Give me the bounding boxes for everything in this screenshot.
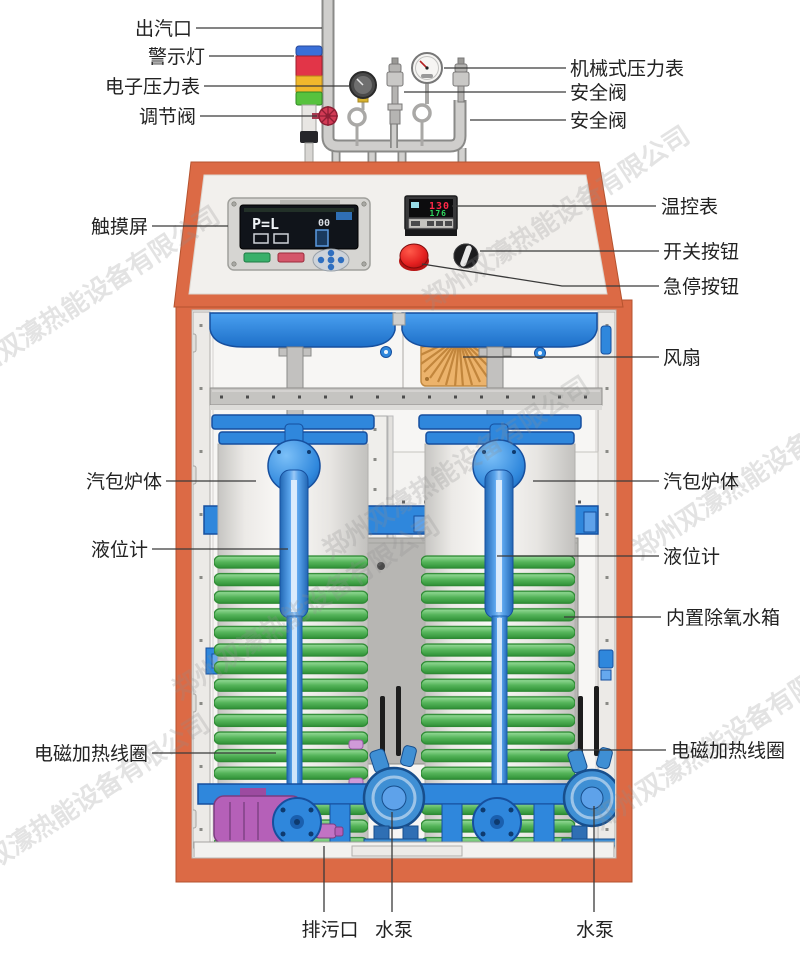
warning-light-tower [296, 46, 322, 167]
label-drain-outlet: 排污口 [301, 919, 358, 941]
temp-button[interactable] [427, 221, 434, 226]
label-level-gauge-left: 液位计 [91, 539, 148, 561]
label-coil-left: 电磁加热线圈 [34, 743, 148, 765]
temp-sv-value: 176 [430, 209, 447, 218]
pump-head-left [273, 798, 321, 846]
screen-main-text: P=L [252, 215, 279, 233]
temp-button[interactable] [436, 221, 443, 226]
boiler-diagram: P=L 00 130 176 [0, 0, 800, 960]
label-mechanical-gauge: 机械式压力表 [570, 58, 684, 80]
label-safety-valve-bottom: 安全阀 [570, 110, 627, 132]
label-touch-screen: 触摸屏 [91, 216, 148, 238]
door-handle[interactable] [601, 326, 611, 354]
label-safety-valve-top: 安全阀 [570, 82, 627, 104]
pump-head-right [473, 798, 521, 846]
label-electronic-pressure-gauge: 电子压力表 [105, 76, 200, 98]
temp-button[interactable] [411, 221, 420, 226]
steam-header-left [210, 313, 395, 347]
label-warning-light: 警示灯 [148, 46, 205, 68]
emergency-stop-button[interactable] [399, 244, 429, 271]
safety-valve-b [453, 58, 469, 102]
label-pump-left: 水泵 [375, 919, 413, 941]
watermark: 郑州双濠热能设备有限公司 [627, 370, 800, 565]
safety-valve-a [387, 58, 403, 148]
mechanical-pressure-gauge [412, 53, 442, 146]
left-door-strip [191, 312, 210, 848]
steam-header-right [402, 313, 597, 347]
screen-red-button[interactable] [278, 253, 304, 262]
label-steam-outlet: 出汽口 [135, 18, 192, 40]
label-temp-controller: 温控表 [661, 196, 718, 218]
screen-sub-text: 00 [318, 218, 330, 229]
electronic-pressure-gauge [349, 72, 376, 146]
label-pump-right: 水泵 [576, 919, 614, 941]
label-drum-right: 汽包炉体 [663, 471, 739, 493]
floor [194, 842, 614, 858]
temperature-controller[interactable]: 130 176 [405, 196, 457, 236]
label-coil-right: 电磁加热线圈 [671, 740, 785, 762]
screen-green-button[interactable] [244, 253, 270, 262]
label-regulating-valve: 调节阀 [139, 106, 196, 128]
label-fan: 风扇 [663, 347, 701, 369]
touch-screen[interactable]: P=L 00 [228, 198, 370, 271]
label-switch-button: 开关按钮 [663, 241, 739, 263]
label-level-gauge-right: 液位计 [663, 546, 720, 568]
label-deaerator-tank: 内置除氧水箱 [666, 607, 780, 629]
temp-button[interactable] [445, 221, 452, 226]
label-emergency-stop: 急停按钮 [663, 276, 739, 298]
screen-dpad[interactable] [313, 249, 349, 271]
label-drum-left: 汽包炉体 [86, 471, 162, 493]
